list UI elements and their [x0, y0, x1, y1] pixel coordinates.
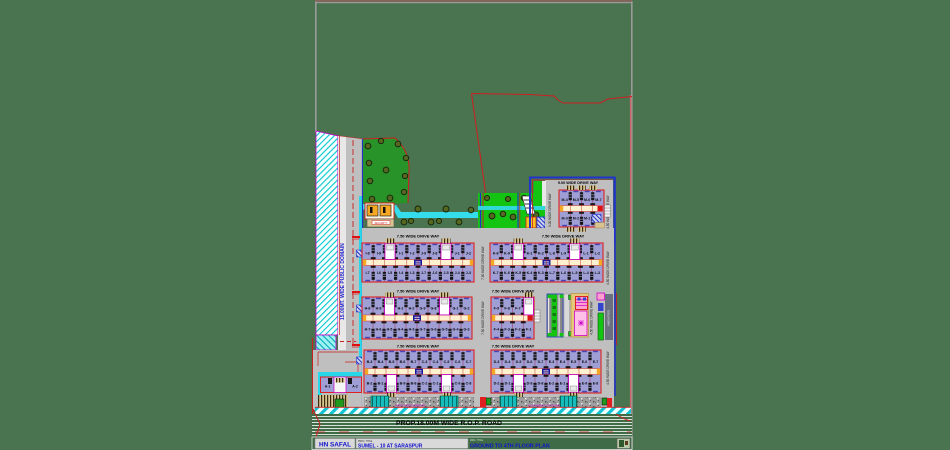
- svg-text:J-7: J-7: [421, 271, 426, 275]
- svg-text:K-1: K-1: [527, 252, 533, 256]
- svg-text:7.50 WIDE DRIVE WAY: 7.50 WIDE DRIVE WAY: [397, 344, 440, 349]
- svg-text:7.50 WIDE DRIVE WAY: 7.50 WIDE DRIVE WAY: [481, 300, 485, 335]
- svg-text:E-5: E-5: [571, 360, 577, 364]
- svg-text:K-5: K-5: [515, 271, 521, 275]
- svg-text:C-5: C-5: [444, 360, 450, 364]
- svg-text:K-9: K-9: [504, 252, 510, 256]
- svg-text:7.50 WIDE DRIVE WAY: 7.50 WIDE DRIVE WAY: [397, 234, 440, 239]
- svg-text:B-5: B-5: [389, 360, 395, 364]
- svg-text:M-1: M-1: [584, 217, 590, 221]
- svg-text:B-2: B-2: [367, 381, 373, 385]
- svg-text:I-9: I-9: [377, 252, 381, 256]
- svg-text:7.50 WIDE DRIVE WAY: 7.50 WIDE DRIVE WAY: [542, 234, 585, 239]
- svg-text:K-6: K-6: [504, 271, 510, 275]
- svg-text:G-7: G-7: [420, 328, 426, 332]
- svg-text:D-5: D-5: [516, 360, 522, 364]
- svg-text:AMENITIES: AMENITIES: [607, 310, 611, 326]
- svg-text:F-1: F-1: [526, 328, 531, 332]
- svg-text:C-6: C-6: [455, 360, 461, 364]
- svg-text:4.50 WIDE DRIVE WAY: 4.50 WIDE DRIVE WAY: [606, 250, 610, 285]
- svg-text:L-2: L-2: [595, 252, 600, 256]
- svg-text:M-6: M-6: [584, 198, 590, 202]
- svg-text:C-2: C-2: [422, 381, 428, 385]
- svg-text:7.50 WIDE DRIVE WAY: 7.50 WIDE DRIVE WAY: [492, 344, 535, 349]
- svg-text:B-9: B-9: [400, 381, 406, 385]
- svg-text:J-3: J-3: [466, 271, 471, 275]
- svg-text:PROJ. TITLE: PROJ. TITLE: [358, 440, 373, 443]
- svg-text:B-8: B-8: [411, 381, 417, 385]
- svg-text:B-7: B-7: [411, 360, 417, 364]
- svg-text:H-9: H-9: [376, 307, 382, 311]
- svg-text:M-7: M-7: [595, 198, 601, 202]
- svg-text:J-1: J-1: [455, 252, 460, 256]
- svg-text:I-7: I-7: [365, 271, 369, 275]
- svg-text:M-4: M-4: [562, 198, 568, 202]
- svg-text:G-3: G-3: [464, 328, 470, 332]
- svg-text:F-7: F-7: [515, 307, 520, 311]
- svg-text:L-3: L-3: [595, 271, 600, 275]
- svg-text:B-4: B-4: [378, 360, 384, 364]
- svg-text:F-2: F-2: [515, 328, 520, 332]
- svg-text:B-6: B-6: [400, 360, 406, 364]
- svg-text:M-2: M-2: [573, 217, 579, 221]
- svg-text:J-9: J-9: [421, 252, 426, 256]
- svg-text:7.50 WIDE DRIVE WAY: 7.50 WIDE DRIVE WAY: [481, 245, 485, 280]
- svg-text:G-2: G-2: [464, 307, 470, 311]
- svg-text:I-5: I-5: [388, 271, 392, 275]
- svg-text:H-2: H-2: [409, 307, 415, 311]
- svg-text:H-5: H-5: [387, 328, 393, 332]
- svg-text:G-9: G-9: [420, 307, 426, 311]
- svg-text:F-4: F-4: [494, 328, 499, 332]
- svg-text:K-2: K-2: [538, 252, 544, 256]
- svg-text:L-1: L-1: [583, 252, 588, 256]
- svg-text:B-3: B-3: [367, 360, 373, 364]
- svg-text:4.50 WIDE DRIVE WAY: 4.50 WIDE DRIVE WAY: [606, 350, 610, 385]
- svg-text:D-3: D-3: [494, 360, 500, 364]
- svg-text:A-2: A-2: [352, 385, 358, 389]
- svg-text:RAMP: RAMP: [352, 292, 360, 296]
- svg-text:E-8: E-8: [593, 381, 599, 385]
- svg-text:J-8: J-8: [432, 252, 437, 256]
- svg-text:I-3: I-3: [410, 271, 414, 275]
- svg-text:L-4: L-4: [583, 271, 588, 275]
- svg-text:M-5: M-5: [573, 198, 579, 202]
- svg-text:E-7: E-7: [593, 360, 599, 364]
- svg-text:C-9: C-9: [455, 381, 461, 385]
- svg-text:H-7: H-7: [365, 328, 371, 332]
- svg-text:PROP.18.00M WIDE R.O.P. ROAD: PROP.18.00M WIDE R.O.P. ROAD: [396, 420, 502, 427]
- svg-text:L-7: L-7: [549, 271, 554, 275]
- svg-text:C-8: C-8: [466, 381, 472, 385]
- svg-text:E-9: E-9: [582, 381, 588, 385]
- svg-text:D-9: D-9: [527, 381, 533, 385]
- svg-text:F-9: F-9: [494, 307, 499, 311]
- svg-text:SECURITY: SECURITY: [374, 221, 387, 225]
- svg-text:M-3: M-3: [562, 217, 568, 221]
- svg-text:E-6: E-6: [582, 360, 588, 364]
- svg-text:D-8: D-8: [538, 381, 544, 385]
- svg-text:C-3: C-3: [422, 360, 428, 364]
- svg-text:J-5: J-5: [443, 271, 448, 275]
- svg-text:SUMEL - 10 AT SARASPUR: SUMEL - 10 AT SARASPUR: [358, 444, 423, 450]
- svg-text:H-6: H-6: [376, 328, 382, 332]
- svg-text:G-1: G-1: [453, 307, 459, 311]
- svg-text:A-1: A-1: [325, 385, 331, 389]
- svg-text:D-4: D-4: [505, 360, 511, 364]
- svg-text:G-4: G-4: [453, 328, 459, 332]
- svg-text:I-8: I-8: [365, 252, 369, 256]
- svg-text:L-9: L-9: [561, 252, 566, 256]
- svg-text:9.00 WIDE DRIVE WAY: 9.00 WIDE DRIVE WAY: [548, 192, 552, 227]
- svg-text:RAMP: RAMP: [352, 345, 360, 349]
- svg-text:E-3: E-3: [549, 360, 555, 364]
- svg-text:F-3: F-3: [504, 328, 509, 332]
- svg-text:ALIGNMENT OF ROAD: ALIGNMENT OF ROAD: [528, 404, 561, 408]
- svg-text:C-1: C-1: [433, 381, 439, 385]
- svg-text:I-1: I-1: [399, 252, 403, 256]
- svg-text:K-8: K-8: [493, 252, 499, 256]
- svg-text:RAMP: RAMP: [352, 237, 360, 241]
- svg-text:B-1: B-1: [378, 381, 384, 385]
- svg-text:K-4: K-4: [527, 271, 533, 275]
- svg-text:H-4: H-4: [398, 328, 404, 332]
- svg-text:C-4: C-4: [433, 360, 439, 364]
- svg-text:E-4: E-4: [560, 360, 566, 364]
- svg-text:D-6: D-6: [527, 360, 533, 364]
- svg-text:G-8: G-8: [431, 307, 437, 311]
- svg-text:F-8: F-8: [504, 307, 509, 311]
- svg-text:D-1: D-1: [505, 381, 511, 385]
- svg-text:I-4: I-4: [399, 271, 403, 275]
- svg-text:H-8: H-8: [365, 307, 371, 311]
- svg-text:7.50 WIDE DRIVE WAY: 7.50 WIDE DRIVE WAY: [397, 289, 440, 294]
- svg-text:D-2: D-2: [494, 381, 500, 385]
- svg-text:H-1: H-1: [398, 307, 404, 311]
- svg-text:GROUND TO 4TH FLOOR PLAN: GROUND TO 4TH FLOOR PLAN: [470, 444, 550, 450]
- svg-text:J-6: J-6: [432, 271, 437, 275]
- svg-text:L-8: L-8: [549, 252, 554, 256]
- svg-text:HN SAFAL: HN SAFAL: [319, 442, 351, 449]
- svg-text:E-1: E-1: [560, 381, 566, 385]
- svg-text:G-5: G-5: [442, 328, 448, 332]
- svg-text:I-6: I-6: [377, 271, 381, 275]
- svg-text:DRG. TITLE: DRG. TITLE: [470, 439, 484, 442]
- svg-text:9.00 WIDE DRIVE WAY: 9.00 WIDE DRIVE WAY: [558, 181, 599, 185]
- svg-text:15.00MT. WIDE PUBLIC DOMAIN: 15.00MT. WIDE PUBLIC DOMAIN: [340, 243, 346, 320]
- svg-text:L-5: L-5: [572, 271, 577, 275]
- svg-text:L-6: L-6: [561, 271, 566, 275]
- svg-text:J-2: J-2: [466, 252, 471, 256]
- svg-text:K-3: K-3: [538, 271, 544, 275]
- svg-text:D-7: D-7: [538, 360, 544, 364]
- svg-text:H-3: H-3: [409, 328, 415, 332]
- svg-text:E-2: E-2: [549, 381, 555, 385]
- svg-text:4.50 WIDE DRIVE WAY: 4.50 WIDE DRIVE WAY: [590, 300, 594, 335]
- svg-text:K-7: K-7: [493, 271, 499, 275]
- svg-text:J-4: J-4: [455, 271, 460, 275]
- svg-text:4.5MT WIDE MARGIN: 4.5MT WIDE MARGIN: [395, 404, 425, 408]
- svg-text:I-2: I-2: [410, 252, 414, 256]
- svg-text:C-7: C-7: [466, 360, 472, 364]
- svg-text:G-6: G-6: [431, 328, 437, 332]
